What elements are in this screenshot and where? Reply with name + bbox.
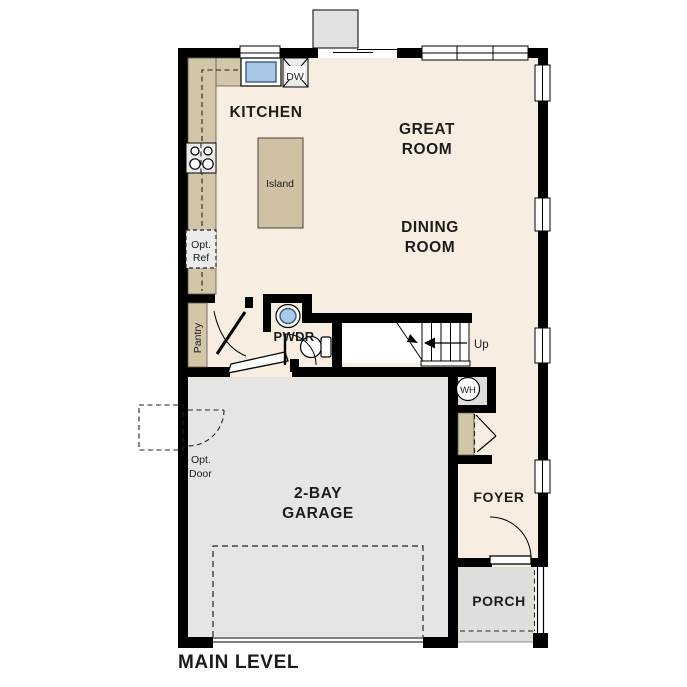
dining-room-label-2: ROOM [405, 239, 456, 256]
wh-closet-wall [448, 405, 496, 413]
wall-segment [178, 637, 213, 648]
kitchen-sink-basin [246, 62, 276, 82]
kitchen-label: KITCHEN [229, 104, 302, 121]
toilet-tank [321, 337, 331, 357]
porch-post [533, 633, 548, 648]
closet-wall [448, 455, 492, 464]
wall-segment [448, 558, 492, 567]
floor-plan: KITCHEN GREAT ROOM DINING ROOM 2-BAY GAR… [0, 0, 687, 687]
chimney [313, 10, 358, 48]
stairs-wall [302, 313, 472, 323]
opt-door-stoop [139, 405, 183, 450]
wall-segment [178, 294, 215, 303]
wall-segment [538, 231, 548, 328]
wall-segment [397, 48, 422, 58]
pwdr-wall [263, 294, 271, 332]
island-label: Island [266, 178, 294, 190]
water-heater-label: WH [460, 385, 476, 396]
front-door-leaf [490, 556, 531, 564]
garage-label-2: GARAGE [282, 505, 354, 522]
opt-ref-label-2: Ref [193, 252, 209, 264]
wall-segment [292, 367, 496, 377]
closet-shelf [458, 413, 474, 455]
pwdr-label: PWDR [274, 329, 315, 344]
foyer-label: FOYER [473, 489, 524, 505]
pwdr-wall [332, 317, 342, 367]
door-stop [290, 359, 299, 372]
burner [204, 147, 212, 155]
opt-door-label-2: Door [189, 468, 212, 480]
wall-segment [178, 48, 188, 648]
wall-segment [278, 48, 318, 58]
wall-segment [538, 48, 548, 65]
wall-segment [538, 101, 548, 198]
burner [190, 159, 200, 169]
burner [203, 159, 213, 169]
wall-segment [178, 367, 230, 377]
plan-title: MAIN LEVEL [178, 652, 299, 673]
burner [191, 147, 199, 155]
stairs-up-label: Up [474, 339, 489, 351]
wall-segment [531, 558, 548, 567]
opt-door-label-1: Opt. [191, 454, 211, 466]
great-room-label-1: GREAT [399, 121, 455, 138]
great-room-label-2: ROOM [402, 141, 453, 158]
floor-plan-page: KITCHEN GREAT ROOM DINING ROOM 2-BAY GAR… [0, 0, 687, 687]
dining-room-label-1: DINING [401, 219, 459, 236]
pwdr-sink-basin [280, 309, 296, 324]
pantry-label: Pantry [192, 322, 204, 353]
wall-segment [538, 493, 548, 567]
door-jamb [245, 297, 253, 308]
opt-ref-label-1: Opt. [191, 239, 211, 251]
stair-bottom-edge [421, 361, 470, 366]
porch-label: PORCH [472, 593, 526, 609]
garage-label-1: 2-BAY [294, 485, 342, 502]
wall-segment [538, 363, 548, 460]
dishwasher-label: DW [286, 71, 304, 83]
